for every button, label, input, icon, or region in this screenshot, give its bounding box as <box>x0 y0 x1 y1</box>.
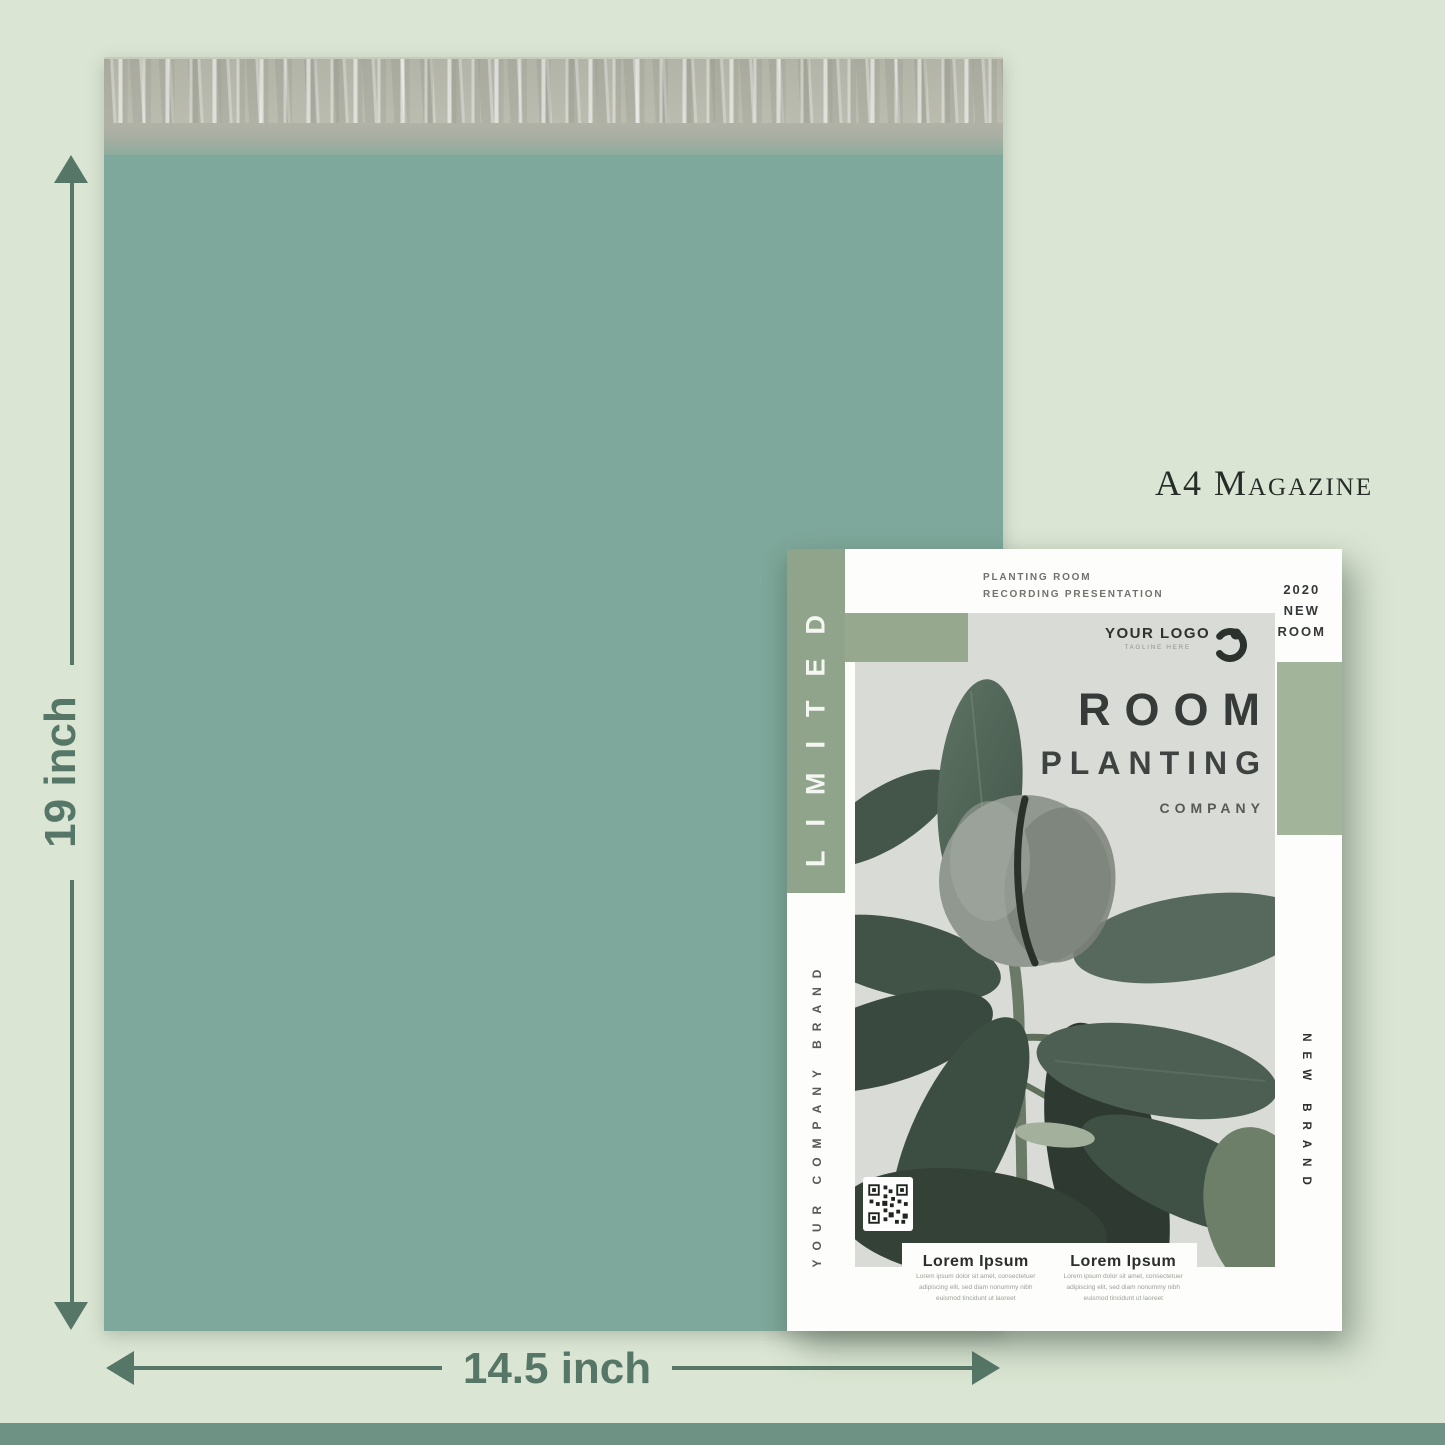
cover-header-line2: RECORDING PRESENTATION <box>983 586 1163 603</box>
qr-code <box>863 1177 913 1231</box>
width-dimension-line-left <box>133 1366 442 1370</box>
footer-column-1-heading: Lorem Ipsum <box>906 1253 1046 1271</box>
footer-column-1-line: adipiscing elit, sed diam nonummy nibh <box>906 1282 1046 1293</box>
footer-column-1-line: euismod tincidunt ut laoreet <box>906 1293 1046 1304</box>
footer-column-2-line: adipiscing elit, sed diam nonummy nibh <box>1053 1282 1193 1293</box>
title-line1: ROOM <box>1040 685 1274 735</box>
width-dimension-line-right <box>672 1366 974 1370</box>
height-dimension-label: 19 inch <box>36 696 86 848</box>
footer-column-2-heading: Lorem Ipsum <box>1053 1253 1193 1271</box>
magazine-cover: PLANTING ROOM RECORDING PRESENTATION 202… <box>787 549 1342 1331</box>
height-arrowhead-top <box>54 155 88 183</box>
mailer-adhesive-flap <box>104 57 1003 123</box>
issue-word1: NEW <box>1278 600 1326 621</box>
cover-right-band <box>1277 662 1342 835</box>
logo-tagline: TAGLINE HERE <box>1105 644 1210 651</box>
logo-block: YOUR LOGO TAGLINE HERE <box>1105 625 1210 651</box>
issue-block: 2020 NEW ROOM <box>1278 579 1326 642</box>
cover-footer-columns: Lorem Ipsum Lorem ipsum dolor sit amet, … <box>902 1243 1197 1331</box>
cover-title: ROOM PLANTING COMPANY <box>1040 685 1260 816</box>
right-margin-text: NEW BRAND <box>1300 1033 1312 1195</box>
height-arrowhead-bottom <box>54 1302 88 1330</box>
height-dimension-line-upper <box>70 181 74 665</box>
footer-column-1: Lorem Ipsum Lorem ipsum dolor sit amet, … <box>906 1253 1046 1331</box>
left-margin-text: YOUR COMPANY BRAND <box>810 961 824 1268</box>
logo-text: YOUR LOGO <box>1105 625 1210 642</box>
logo-mark-icon <box>1207 619 1253 665</box>
title-line3: COMPANY <box>1040 800 1265 816</box>
height-dimension-line-lower <box>70 880 74 1304</box>
footer-column-2-line: Lorem ipsum dolor sit amet, consectetuer <box>1053 1271 1193 1282</box>
footer-column-2-line: euismod tincidunt ut laoreet <box>1053 1293 1193 1304</box>
footer-column-1-line: Lorem ipsum dolor sit amet, consectetuer <box>906 1271 1046 1282</box>
footer-column-2: Lorem Ipsum Lorem ipsum dolor sit amet, … <box>1053 1253 1193 1331</box>
product-dimension-graphic: 19 inch 14.5 inch A4 Magazine <box>0 0 1445 1445</box>
spine-text: LIMITED <box>801 591 832 867</box>
cover-header-line1: PLANTING ROOM <box>983 569 1163 586</box>
backdrop-bottom-strip <box>0 1423 1445 1445</box>
issue-year: 2020 <box>1278 579 1326 600</box>
mailer-flap-shadow <box>104 123 1003 155</box>
issue-word2: ROOM <box>1278 621 1326 642</box>
width-dimension-label: 14.5 inch <box>463 1344 651 1394</box>
width-arrowhead-right <box>972 1351 1000 1385</box>
title-line2: PLANTING <box>1040 745 1268 782</box>
width-arrowhead-left <box>106 1351 134 1385</box>
size-caption: A4 Magazine <box>1155 462 1373 504</box>
cover-corner-band <box>845 613 968 662</box>
cover-header-text: PLANTING ROOM RECORDING PRESENTATION <box>983 569 1163 603</box>
